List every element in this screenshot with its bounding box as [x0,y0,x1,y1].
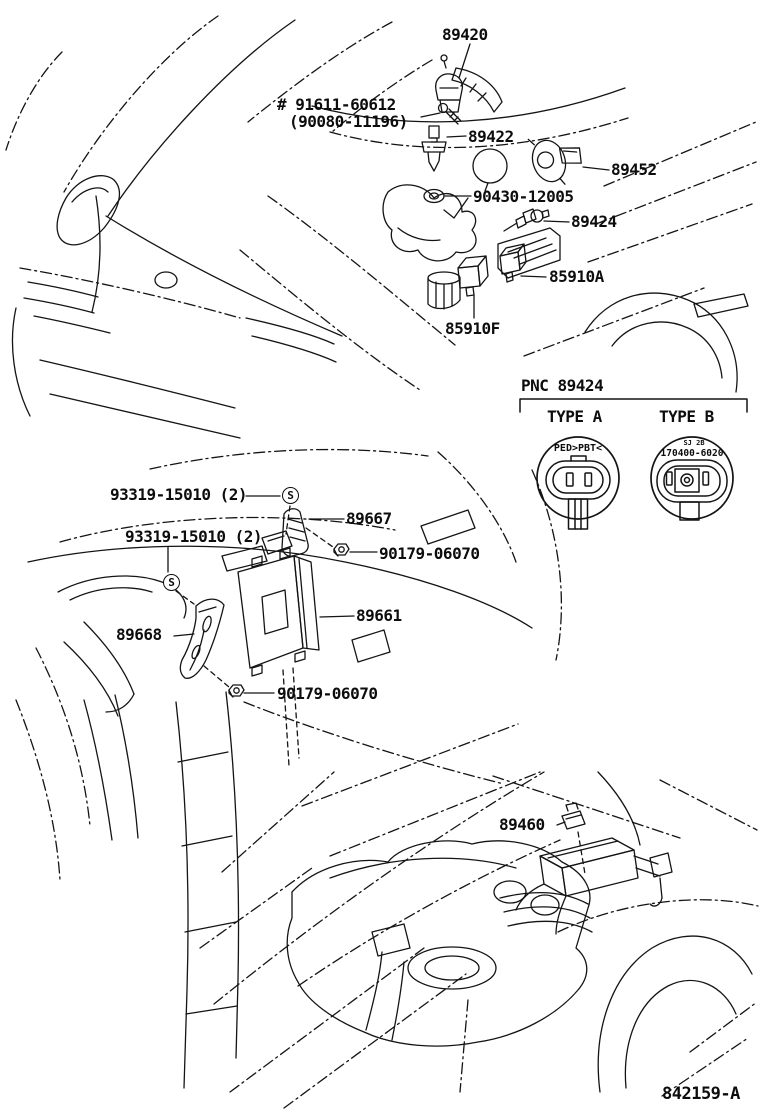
drawing-code: 842159-A [662,1086,740,1104]
dashboard-outline [16,450,561,880]
bottom-leader-lines [557,822,565,825]
type-a-connector-marking: PED>PBT< [554,444,602,455]
part-89422-icon [422,126,446,171]
part-89420-icon [436,55,502,112]
pnc-type-b-label: TYPE B [659,409,714,426]
parts-diagram-page: 89420 # 91611-60612 (90080-11196) 89422 … [0,0,760,1112]
part-89661-icon [238,548,319,676]
part-label-85910a: 85910A [549,269,604,286]
gasket-90430-icon [424,190,444,203]
part-label-89661: 89661 [356,608,402,625]
screw-symbol-1: S [282,487,299,504]
nut-label-2: 90179-06070 [277,686,377,703]
front-car-solid-lines [12,20,748,438]
part-85910f-icon [428,256,488,309]
part-label-89667: 89667 [346,511,392,528]
screw-label-2: 93319-15010 (2) [125,529,262,546]
part-label-90430-12005: 90430-12005 [473,189,573,206]
bottom-assembly-dashed-lines [578,832,585,874]
part-label-89420: 89420 [442,27,488,44]
nut-icon-2 [229,685,244,697]
screw-symbol-2: S [163,574,180,591]
part-89424-icon [504,209,549,231]
engine-circle-art [473,149,507,191]
part-label-85910f: 85910F [445,321,500,338]
type-b-connector-marking-small: SJ 2B [683,440,704,447]
type-b-connector-marking: 170400-6020 [661,449,724,459]
rear-car-outline [200,772,758,1108]
pnc-type-a-label: TYPE A [547,409,602,426]
fuel-tank-art [287,772,640,1046]
part-89452-icon [525,125,588,191]
nut-label-1: 90179-06070 [379,546,479,563]
part-label-89422: 89422 [468,129,514,146]
dashboard-solid-lines [28,510,532,1088]
pnc-panel-title: PNC 89424 [521,378,603,395]
part-label-89460: 89460 [499,817,545,834]
part-label-90080-11196: (90080-11196) [289,114,408,131]
nut-icon-1 [334,544,349,556]
screw-label-1: 93319-15010 (2) [110,487,247,504]
part-89668-icon [180,599,224,678]
part-label-89452: 89452 [611,162,657,179]
part-label-89424: 89424 [571,214,617,231]
part-label-89668: 89668 [116,627,162,644]
rear-wheel-arch-art [598,936,752,1092]
